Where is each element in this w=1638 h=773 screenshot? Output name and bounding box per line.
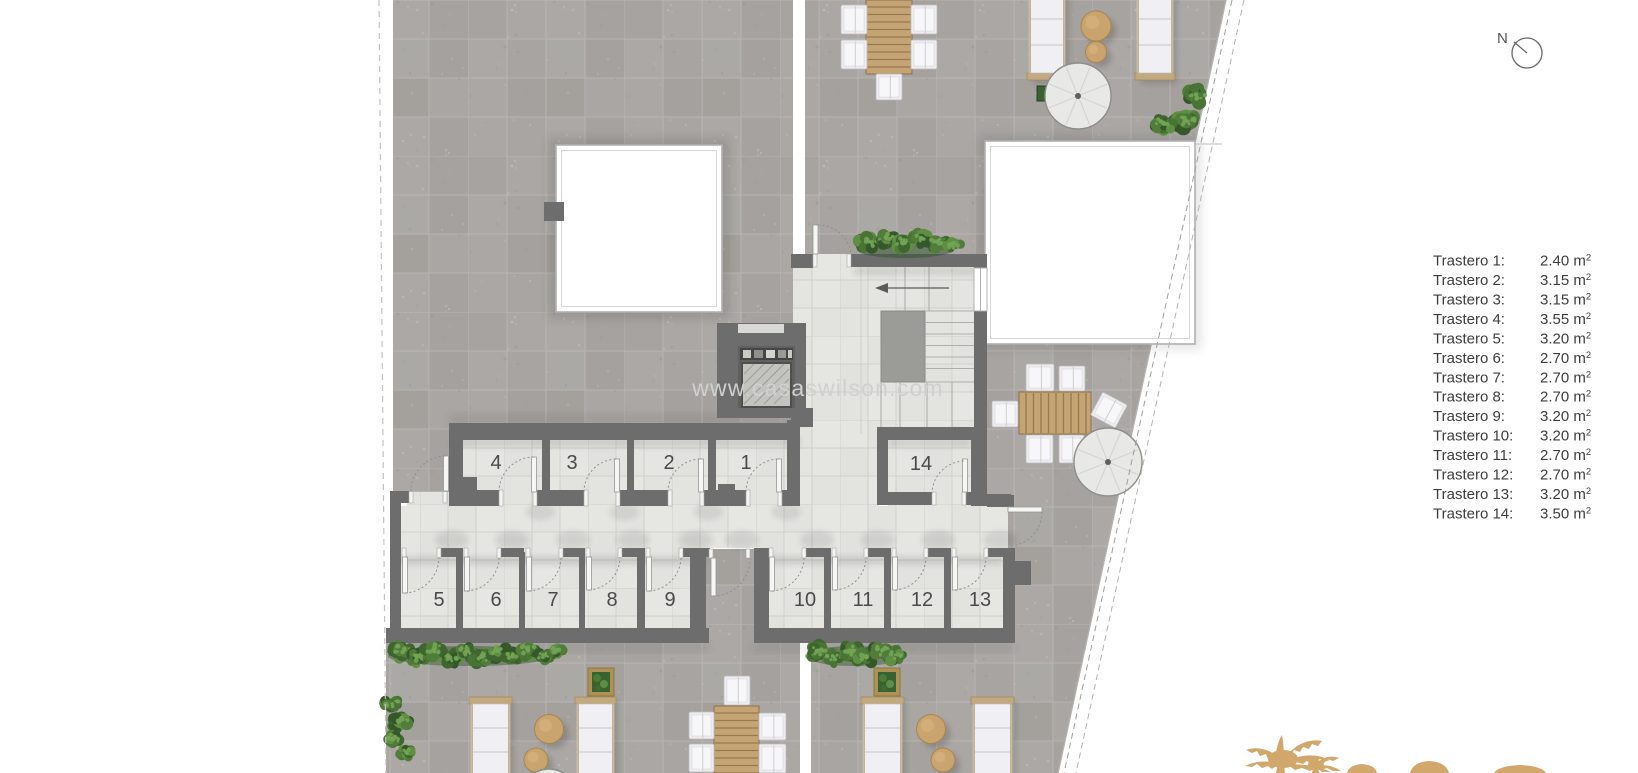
svg-text:2.70 m2: 2.70 m2 <box>1540 350 1591 367</box>
svg-text:Trastero 1:: Trastero 1: <box>1433 253 1505 270</box>
svg-text:13: 13 <box>969 589 991 611</box>
svg-text:Trastero 9:: Trastero 9: <box>1433 408 1505 425</box>
svg-text:6: 6 <box>490 589 501 611</box>
svg-text:Trastero 7:: Trastero 7: <box>1433 369 1505 386</box>
svg-text:3.15 m2: 3.15 m2 <box>1540 272 1591 289</box>
svg-text:Trastero 10:: Trastero 10: <box>1433 428 1513 445</box>
svg-text:14: 14 <box>910 453 932 475</box>
svg-text:3.15 m2: 3.15 m2 <box>1540 291 1591 308</box>
svg-text:Trastero 5:: Trastero 5: <box>1433 330 1505 347</box>
svg-text:9: 9 <box>664 589 675 611</box>
svg-text:Trastero 12:: Trastero 12: <box>1433 467 1513 484</box>
svg-text:4: 4 <box>490 452 501 474</box>
svg-text:7: 7 <box>547 589 558 611</box>
svg-text:N: N <box>1497 30 1508 47</box>
svg-text:Trastero 4:: Trastero 4: <box>1433 311 1505 328</box>
svg-text:3.20 m2: 3.20 m2 <box>1540 408 1591 425</box>
svg-text:2.70 m2: 2.70 m2 <box>1540 369 1591 386</box>
svg-text:11: 11 <box>853 589 874 611</box>
svg-text:2.40 m2: 2.40 m2 <box>1540 253 1591 270</box>
svg-text:1: 1 <box>740 452 751 474</box>
svg-text:2.70 m2: 2.70 m2 <box>1540 447 1591 464</box>
svg-text:Trastero 14:: Trastero 14: <box>1433 506 1513 523</box>
svg-text:5: 5 <box>433 589 444 611</box>
svg-text:3.55 m2: 3.55 m2 <box>1540 311 1591 328</box>
svg-text:12: 12 <box>911 589 933 611</box>
svg-text:Trastero 11:: Trastero 11: <box>1433 447 1512 464</box>
svg-text:2.70 m2: 2.70 m2 <box>1540 467 1591 484</box>
svg-text:8: 8 <box>606 589 617 611</box>
svg-text:Trastero 3:: Trastero 3: <box>1433 291 1505 308</box>
svg-text:Trastero 2:: Trastero 2: <box>1433 272 1505 289</box>
svg-text:3.20 m2: 3.20 m2 <box>1540 330 1591 347</box>
svg-text:3.20 m2: 3.20 m2 <box>1540 486 1591 503</box>
svg-text:Trastero 13:: Trastero 13: <box>1433 486 1513 503</box>
svg-text:2.70 m2: 2.70 m2 <box>1540 389 1591 406</box>
svg-text:3.50 m2: 3.50 m2 <box>1540 506 1591 523</box>
svg-text:Trastero 6:: Trastero 6: <box>1433 350 1505 367</box>
svg-text:3.20 m2: 3.20 m2 <box>1540 428 1591 445</box>
svg-text:10: 10 <box>794 589 816 611</box>
svg-text:Trastero 8:: Trastero 8: <box>1433 389 1505 406</box>
svg-text:www.casaswilson.com: www.casaswilson.com <box>691 375 944 401</box>
svg-text:2: 2 <box>663 452 674 474</box>
svg-text:3: 3 <box>566 452 577 474</box>
